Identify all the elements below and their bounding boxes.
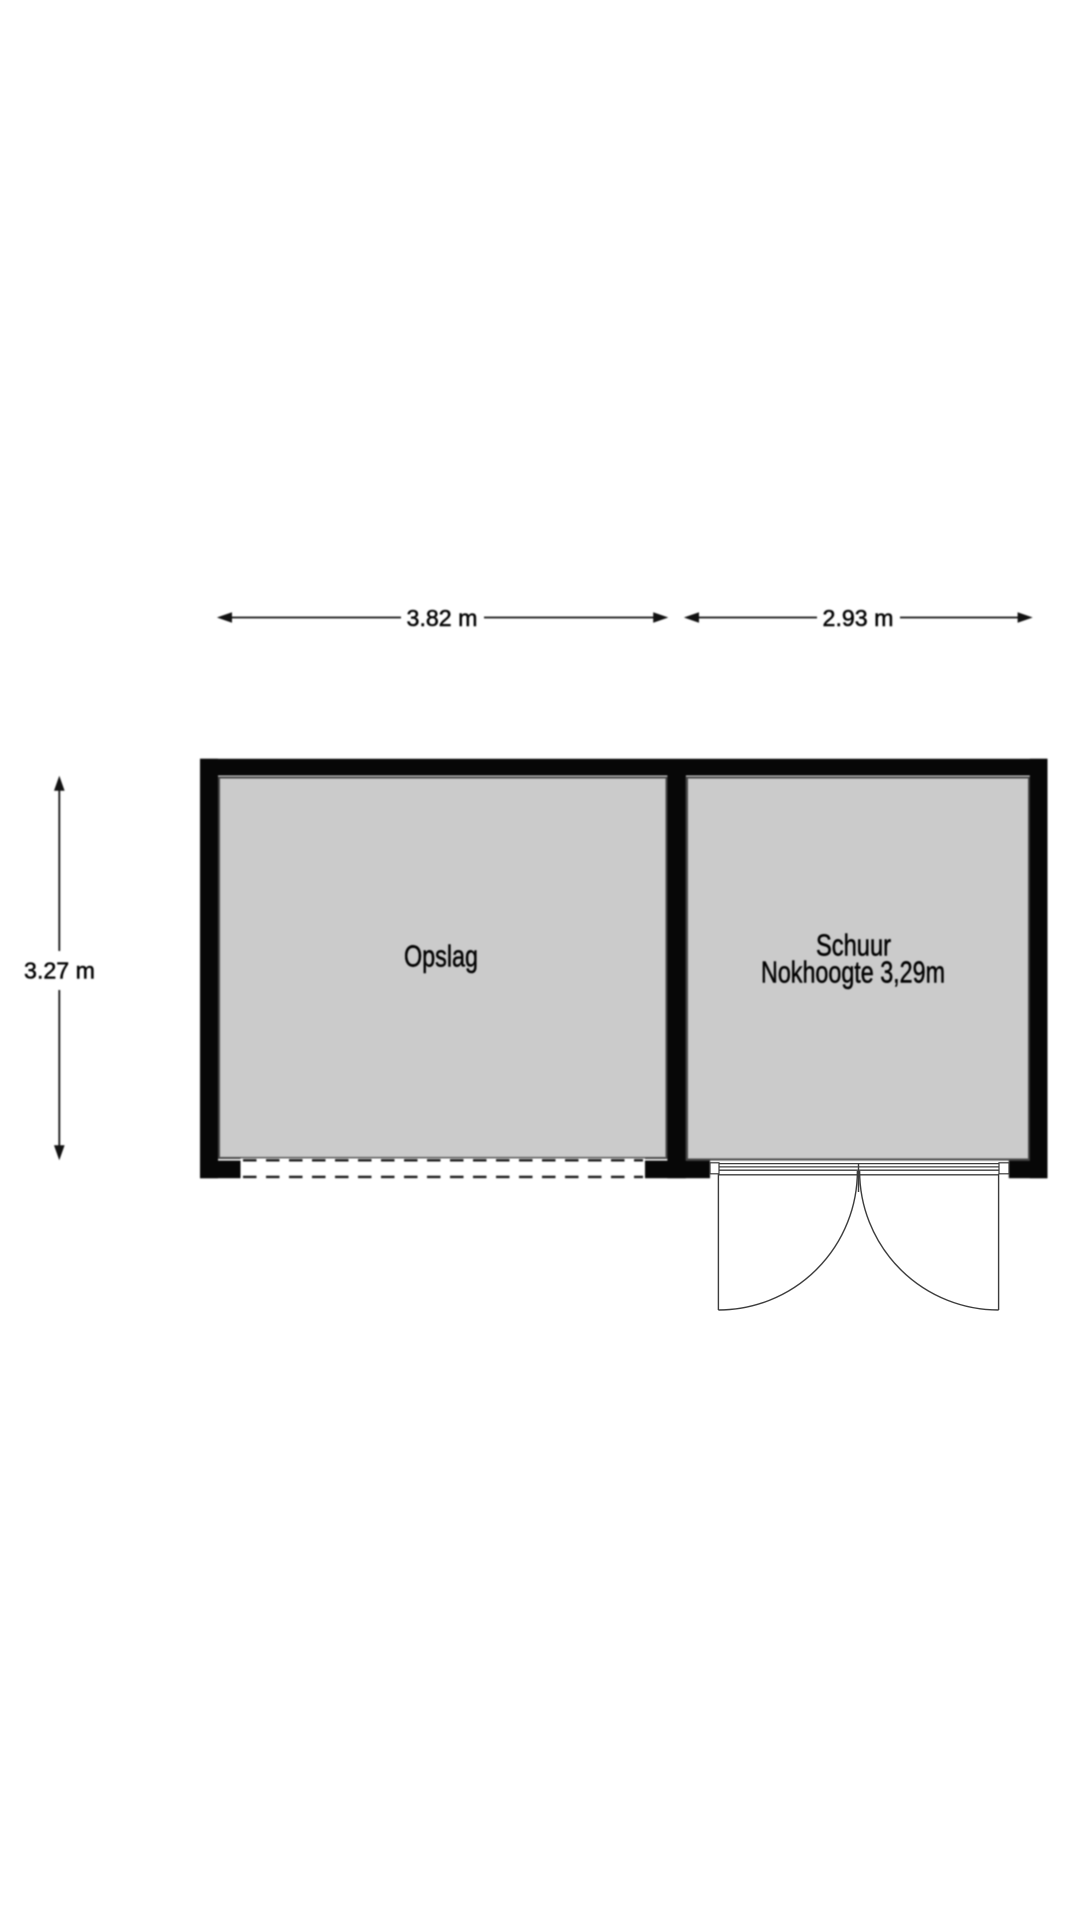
svg-text:Opslag: Opslag <box>404 939 478 974</box>
svg-text:3.27 m: 3.27 m <box>24 957 95 983</box>
svg-text:3.82 m: 3.82 m <box>407 605 478 631</box>
svg-text:Nokhoogte 3,29m: Nokhoogte 3,29m <box>761 956 945 990</box>
svg-text:2.93 m: 2.93 m <box>823 605 894 631</box>
